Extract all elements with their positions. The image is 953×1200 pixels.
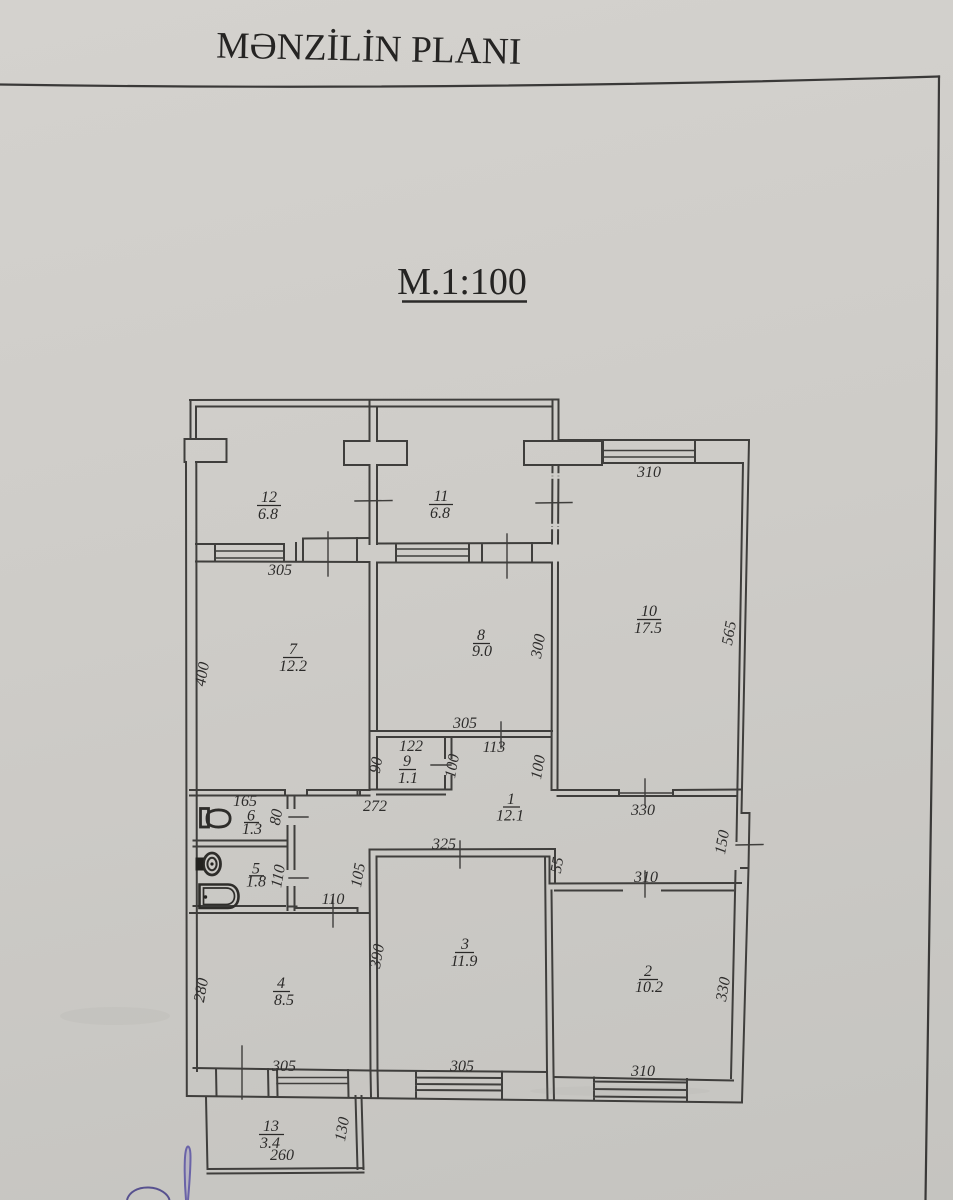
svg-text:1.8: 1.8 xyxy=(246,874,266,891)
svg-text:80: 80 xyxy=(267,808,287,827)
svg-text:105: 105 xyxy=(348,862,369,889)
svg-text:390: 390 xyxy=(367,943,388,971)
svg-text:13: 13 xyxy=(263,1118,279,1135)
svg-text:100: 100 xyxy=(528,754,549,781)
svg-text:260: 260 xyxy=(270,1147,294,1164)
svg-text:10: 10 xyxy=(641,603,657,620)
svg-text:325: 325 xyxy=(431,836,456,853)
svg-text:165: 165 xyxy=(233,793,257,810)
svg-text:3: 3 xyxy=(460,936,469,953)
svg-text:55: 55 xyxy=(548,856,568,875)
svg-text:11: 11 xyxy=(434,488,449,505)
svg-text:305: 305 xyxy=(267,562,292,579)
svg-text:M.1:100: M.1:100 xyxy=(397,261,527,303)
svg-text:110: 110 xyxy=(268,864,289,889)
svg-text:MƏNZİLİN PLANI: MƏNZİLİN PLANI xyxy=(216,26,522,73)
svg-text:100: 100 xyxy=(442,753,463,780)
svg-text:10.2: 10.2 xyxy=(635,979,663,996)
svg-text:113: 113 xyxy=(483,739,506,756)
svg-text:9: 9 xyxy=(403,753,411,770)
svg-text:150: 150 xyxy=(712,829,733,856)
svg-text:305: 305 xyxy=(449,1058,474,1075)
svg-text:130: 130 xyxy=(332,1116,353,1143)
svg-text:7: 7 xyxy=(289,641,298,658)
svg-text:305: 305 xyxy=(271,1058,296,1075)
svg-text:1: 1 xyxy=(507,791,515,808)
svg-text:17.5: 17.5 xyxy=(634,620,662,637)
svg-text:272: 272 xyxy=(363,798,387,815)
svg-text:6.8: 6.8 xyxy=(258,506,278,523)
svg-text:310: 310 xyxy=(633,869,658,886)
svg-text:12: 12 xyxy=(261,489,277,506)
svg-text:8: 8 xyxy=(477,627,485,644)
svg-text:6.8: 6.8 xyxy=(430,505,450,522)
svg-text:400: 400 xyxy=(192,661,213,688)
svg-text:122: 122 xyxy=(399,738,423,755)
svg-text:9.0: 9.0 xyxy=(472,643,492,660)
svg-text:1.3: 1.3 xyxy=(242,821,262,838)
svg-text:8.5: 8.5 xyxy=(274,992,294,1009)
svg-text:11.9: 11.9 xyxy=(451,953,478,970)
svg-text:12.1: 12.1 xyxy=(496,808,524,825)
svg-text:300: 300 xyxy=(528,633,549,661)
svg-text:1.1: 1.1 xyxy=(398,770,418,787)
svg-text:310: 310 xyxy=(636,464,661,481)
svg-text:330: 330 xyxy=(713,976,734,1004)
svg-text:4: 4 xyxy=(277,975,285,992)
svg-text:305: 305 xyxy=(452,715,477,732)
svg-text:330: 330 xyxy=(630,802,655,819)
svg-text:110: 110 xyxy=(322,891,345,908)
svg-text:90: 90 xyxy=(367,756,387,775)
svg-text:2: 2 xyxy=(644,963,652,980)
svg-text:565: 565 xyxy=(719,620,740,647)
svg-text:12.2: 12.2 xyxy=(279,658,307,675)
svg-text:310: 310 xyxy=(630,1063,655,1080)
svg-text:280: 280 xyxy=(191,977,212,1004)
